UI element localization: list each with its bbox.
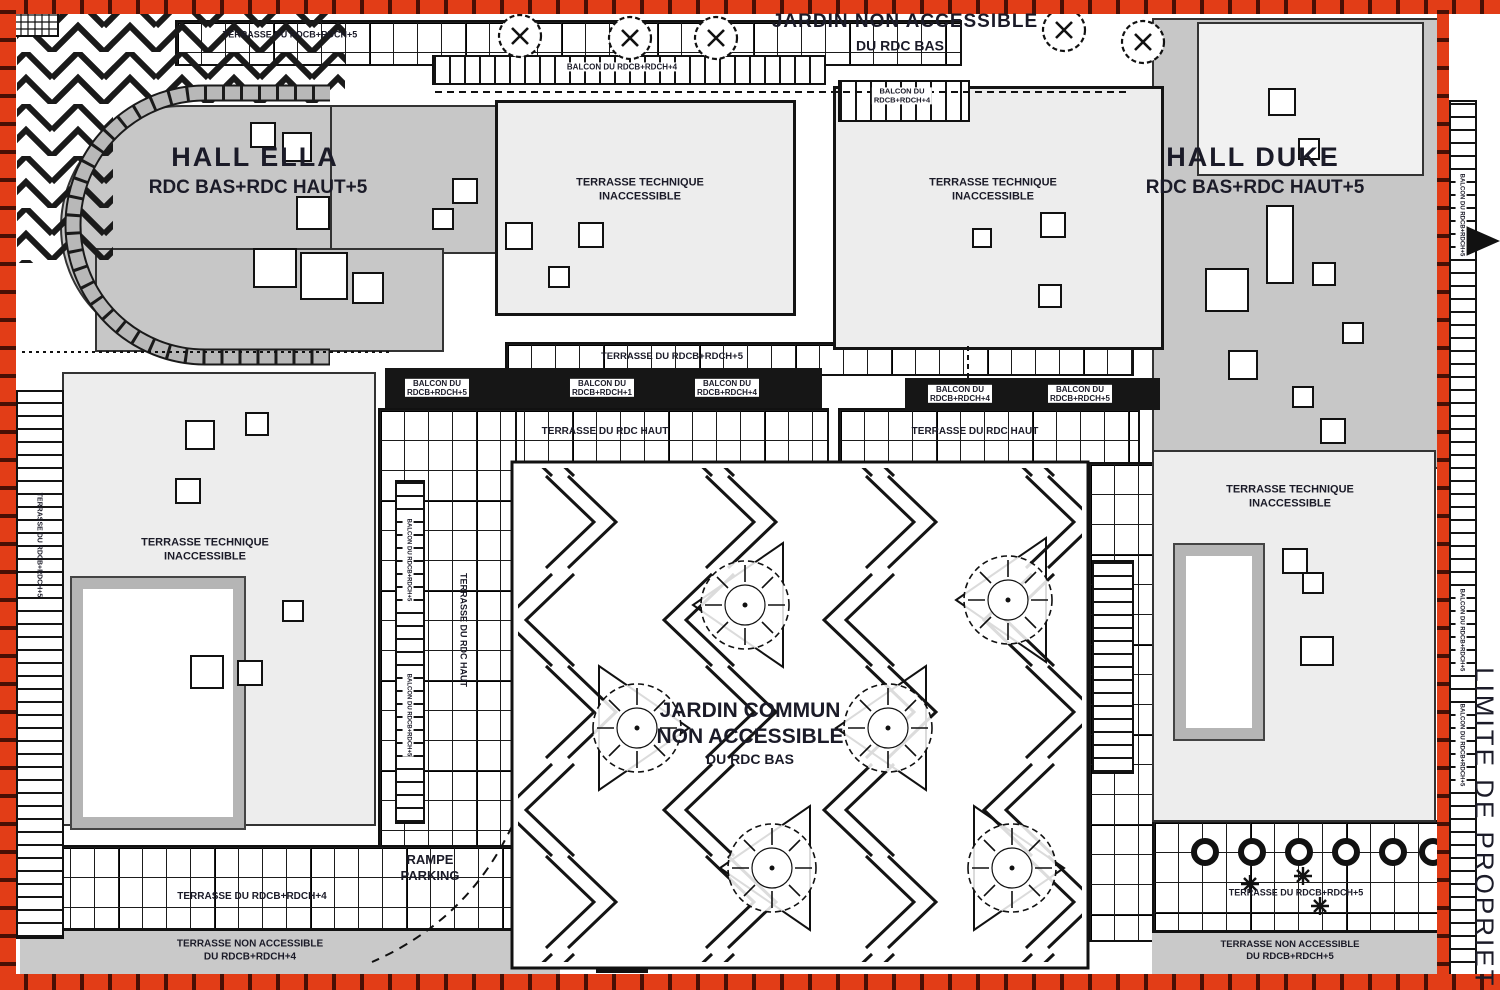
label-line: INACCESSIBLE (929, 190, 1057, 204)
planter (1194, 841, 1216, 863)
label-balcon-row-4: BALCON DU RDCB+RDCH+4 (695, 379, 759, 397)
label-balcon-row-5: BALCON DU RDCB+RDCH+5 (405, 379, 469, 397)
label-jardin-commun: JARDIN COMMUN NON ACCESSIBLE DU RDC BAS (656, 698, 843, 768)
label-terrasse-left-edge: TERRASSE DU RDCB+RDCH+5 (34, 493, 43, 598)
label-hall-duke-levels: RDC BAS+RDC HAUT+5 (1146, 176, 1365, 200)
label-terrasse-bottom-right: TERRASSE DU RDCB+RDCH+5 (1229, 887, 1364, 898)
pot-tree (1043, 9, 1085, 51)
label-line: TERRASSE TECHNIQUE (576, 176, 704, 190)
pot-tree (499, 15, 541, 57)
label-line: TERRASSE TECHNIQUE (929, 176, 1057, 190)
label-line: NON ACCESSIBLE (656, 724, 843, 750)
pot-tree (1122, 21, 1164, 63)
label-rdc-haut-left: TERRASSE DU RDC HAUT (542, 426, 669, 439)
shrub (1311, 897, 1329, 915)
label-line: DU RDC BAS (656, 751, 843, 769)
label-balcon-right-edge-2: BALCON DU RDCB+RDCH+5 (1456, 589, 1467, 672)
label-hall-duke-name: HALL DUKE (1166, 141, 1340, 175)
label-line: RAMPE (401, 852, 460, 868)
shrub (1294, 867, 1312, 885)
label-balcon-row-1: BALCON DU RDCB+RDCH+1 (570, 379, 634, 397)
label-balcon-small: BALCON DU RDCB+RDCH+4 (872, 87, 932, 104)
label-line: BALCON DU (930, 385, 990, 394)
label-line: RDCB+RDCH+1 (572, 388, 632, 397)
label-line: TERRASSE NON ACCESSIBLE (1221, 939, 1360, 951)
label-rdc-haut-vertical: TERRASSE DU RDC HAUT (457, 573, 468, 687)
label-line: RDCB+RDCH+4 (874, 96, 930, 105)
label-line: INACCESSIBLE (576, 190, 704, 204)
label-terrasse-technique-left: TERRASSE TECHNIQUE INACCESSIBLE (141, 536, 269, 564)
label-balcon-right-edge-3: BALCON DU RDCB+RDCH+5 (1456, 704, 1467, 787)
label-jardin-top-line2: DU RDC BAS (856, 37, 944, 55)
boundary-arrow (1466, 226, 1500, 256)
label-hall-ella-levels: RDC BAS+RDC HAUT+5 (149, 176, 368, 200)
boundary-left (0, 0, 16, 990)
label-line: RDCB+RDCH+5 (1050, 394, 1110, 403)
label-line: BALCON DU (697, 379, 757, 388)
label-non-accessible-left: TERRASSE NON ACCESSIBLE DU RDCB+RDCH+4 (177, 939, 323, 964)
planter (1335, 841, 1357, 863)
label-terrasse-mid: TERRASSE DU RDCB+RDCH+5 (601, 351, 743, 363)
label-line: TERRASSE TECHNIQUE (141, 536, 269, 550)
boundary-bottom (0, 974, 1500, 990)
label-hall-ella-name: HALL ELLA (171, 141, 339, 175)
rampe-dashed-curve (372, 826, 512, 962)
label-terrasse-technique-topright: TERRASSE TECHNIQUE INACCESSIBLE (929, 176, 1057, 204)
label-line: TERRASSE NON ACCESSIBLE (177, 939, 323, 952)
label-line: RDCB+RDCH+5 (407, 388, 467, 397)
label-balcon-row-right5: BALCON DU RDCB+RDCH+5 (1048, 385, 1112, 403)
label-terrasse-top: TERRASSE DU RDCB+RDCH+5 (223, 29, 358, 40)
label-line: JARDIN COMMUN (656, 698, 843, 724)
label-line: DU RDCB+RDCH+4 (177, 951, 323, 964)
label-balcon-vert-2: BALCON DU RDCB+RDCH+5 (403, 674, 414, 757)
pot-tree (609, 17, 651, 59)
label-line: PARKING (401, 868, 460, 884)
label-line: INACCESSIBLE (1226, 497, 1354, 511)
floor-plan: JARDIN NON ACCESSIBLE DU RDC BAS HALL EL… (0, 0, 1500, 990)
label-terrasse-bottom-left: TERRASSE DU RDCB+RDCH+4 (177, 891, 326, 904)
label-terrasse-technique-right: TERRASSE TECHNIQUE INACCESSIBLE (1226, 483, 1354, 511)
label-rdc-haut-right: TERRASSE DU RDC HAUT (912, 426, 1039, 439)
label-line: BALCON DU (1050, 385, 1110, 394)
label-line: DU RDCB+RDCH+5 (1221, 951, 1360, 963)
label-line: RDCB+RDCH+4 (697, 388, 757, 397)
label-balcon-vert-1: BALCON DU RDCB+RDCH+5 (403, 519, 414, 602)
label-line: BALCON DU (407, 379, 467, 388)
boundary-right (1437, 0, 1449, 990)
planter (1382, 841, 1404, 863)
planter (1241, 841, 1263, 863)
planter (1288, 841, 1310, 863)
label-balcon-row-right4: BALCON DU RDCB+RDCH+4 (928, 385, 992, 403)
label-balcon-right-edge-1: BALCON DU RDCB+RDCH+5 (1456, 174, 1467, 257)
label-rampe-parking: RAMPE PARKING (401, 852, 460, 885)
label-terrasse-technique-topleft: TERRASSE TECHNIQUE INACCESSIBLE (576, 176, 704, 204)
label-line: TERRASSE TECHNIQUE (1226, 483, 1354, 497)
label-line: RDCB+RDCH+4 (930, 394, 990, 403)
label-jardin-top-line1: JARDIN NON ACCESSIBLE (772, 10, 1038, 34)
label-line: BALCON DU (572, 379, 632, 388)
label-limite-propriete: LIMITE DE PROPRIETE (1468, 667, 1500, 990)
pot-tree (695, 17, 737, 59)
label-balcon-top: BALCON DU RDCB+RDCH+4 (565, 62, 679, 71)
label-non-accessible-right: TERRASSE NON ACCESSIBLE DU RDCB+RDCH+5 (1221, 939, 1360, 963)
label-line: INACCESSIBLE (141, 550, 269, 564)
boundary-top (0, 0, 1500, 14)
